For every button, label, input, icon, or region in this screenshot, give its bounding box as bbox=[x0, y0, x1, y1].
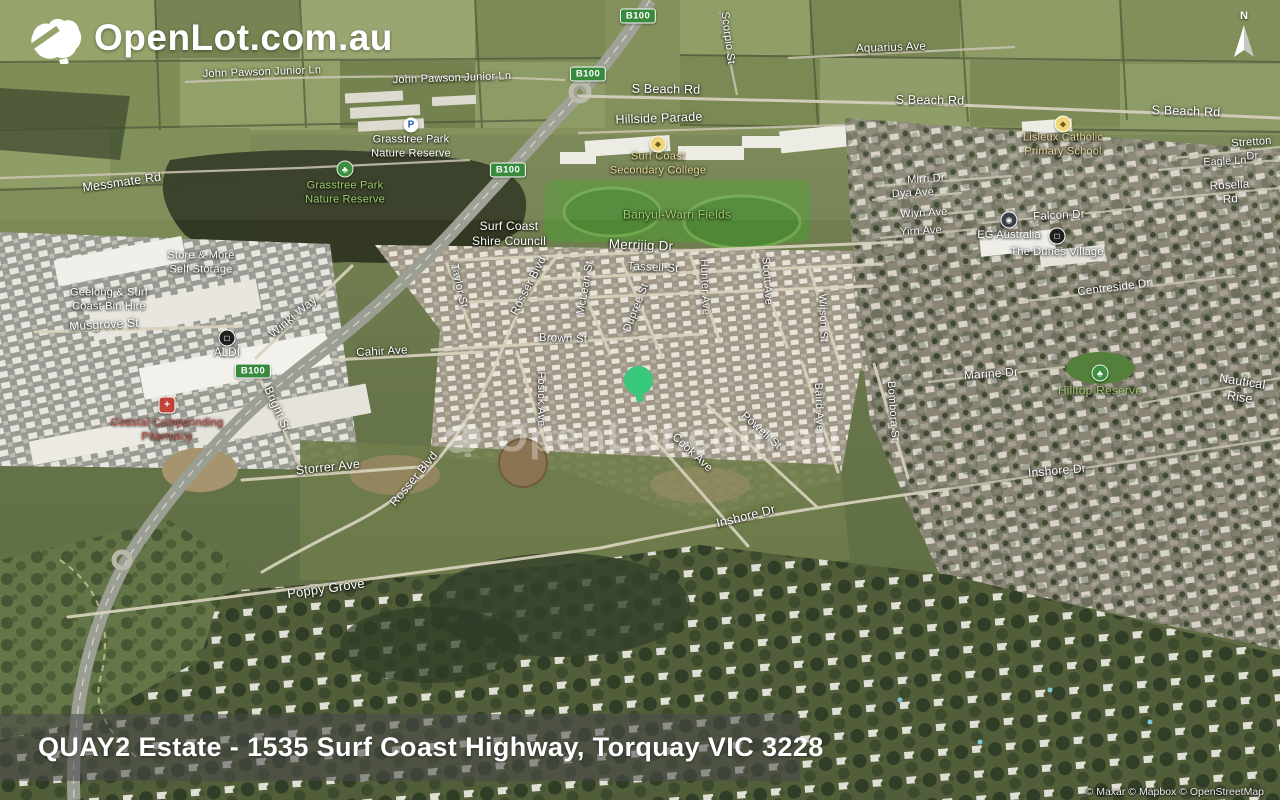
route-shield: B100 bbox=[620, 9, 656, 24]
watermark-australia-icon bbox=[439, 418, 481, 457]
supermarket-icon: ◻ bbox=[219, 330, 236, 347]
route-shield: B100 bbox=[235, 364, 271, 379]
park-icon: ♣ bbox=[1092, 365, 1109, 382]
watermark-text: OpenLot.com.au bbox=[495, 413, 840, 461]
pin-head bbox=[624, 366, 653, 395]
school-icon: ◆ bbox=[1055, 116, 1072, 133]
compass-north-label: N bbox=[1240, 10, 1248, 22]
compass-arrow-icon bbox=[1231, 23, 1257, 59]
parking-icon: P bbox=[404, 118, 419, 133]
caption-bar: QUAY2 Estate - 1535 Surf Coast Highway, … bbox=[0, 714, 800, 781]
compass[interactable]: N bbox=[1226, 10, 1262, 59]
estate-caption: QUAY2 Estate - 1535 Surf Coast Highway, … bbox=[38, 732, 824, 763]
pharmacy-icon: + bbox=[159, 397, 176, 414]
map-attribution[interactable]: © Maxar © Mapbox © OpenStreetMap bbox=[1086, 786, 1264, 798]
pin-stem bbox=[636, 393, 643, 402]
route-shield: B100 bbox=[570, 67, 606, 82]
map-view[interactable]: John Pawson Junior LnJohn Pawson Junior … bbox=[0, 0, 1280, 800]
park-icon: ♣ bbox=[337, 161, 354, 178]
school-icon: ◆ bbox=[650, 136, 667, 153]
openlot-logo: OpenLot.com.au bbox=[26, 12, 393, 64]
center-watermark: OpenLot.com.au bbox=[439, 413, 840, 461]
openlot-logo-text: OpenLot.com.au bbox=[94, 17, 393, 59]
fuel-icon: ◉ bbox=[1001, 212, 1018, 229]
australia-logo-icon bbox=[26, 12, 82, 64]
route-shield: B100 bbox=[490, 163, 526, 178]
shopping-icon: ◻ bbox=[1049, 228, 1066, 245]
